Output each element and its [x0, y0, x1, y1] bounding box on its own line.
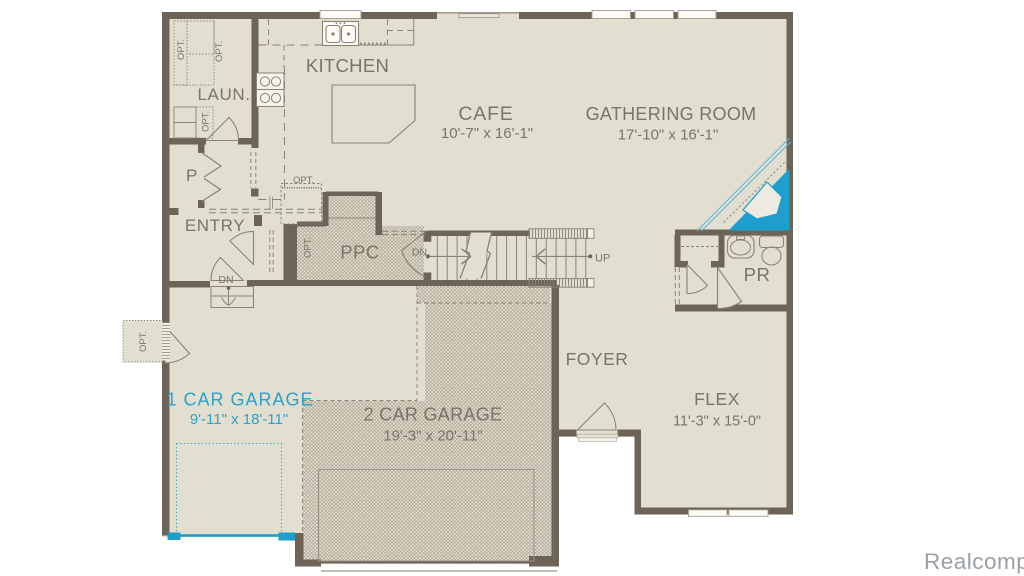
- svg-text:10'-7" x 16'-1": 10'-7" x 16'-1": [441, 125, 533, 142]
- svg-text:DN: DN: [218, 274, 233, 286]
- svg-text:DN: DN: [412, 247, 427, 259]
- svg-text:UP: UP: [595, 253, 610, 265]
- svg-text:PR: PR: [744, 264, 771, 285]
- svg-text:PPC: PPC: [340, 242, 380, 263]
- svg-text:ENTRY: ENTRY: [185, 216, 245, 235]
- svg-text:OPT.: OPT.: [303, 237, 314, 258]
- svg-text:GATHERING ROOM: GATHERING ROOM: [586, 104, 757, 124]
- svg-text:FOYER: FOYER: [566, 349, 629, 369]
- svg-text:KITCHEN: KITCHEN: [306, 55, 389, 76]
- svg-text:17'-10" x 16'-1": 17'-10" x 16'-1": [618, 127, 719, 144]
- svg-text:FLEX: FLEX: [694, 389, 740, 409]
- svg-text:OPT.: OPT.: [201, 111, 212, 132]
- svg-text:OPT.: OPT.: [293, 175, 314, 186]
- svg-text:Realcomp: Realcomp: [924, 549, 1024, 574]
- svg-text:11'-3" x 15'-0": 11'-3" x 15'-0": [673, 414, 761, 430]
- svg-text:OPT.: OPT.: [138, 331, 149, 352]
- svg-text:P: P: [186, 166, 198, 185]
- svg-text:CAFE: CAFE: [458, 103, 513, 125]
- svg-text:OPT.: OPT.: [214, 41, 225, 62]
- svg-text:19'-3" x 20'-11": 19'-3" x 20'-11": [383, 428, 483, 445]
- svg-text:LAUN.: LAUN.: [197, 85, 250, 104]
- svg-text:9'-11" x 18'-11": 9'-11" x 18'-11": [190, 411, 288, 428]
- svg-text:2 CAR GARAGE: 2 CAR GARAGE: [364, 405, 503, 425]
- svg-text:1 CAR GARAGE: 1 CAR GARAGE: [166, 390, 313, 410]
- svg-text:OPT.: OPT.: [176, 39, 187, 60]
